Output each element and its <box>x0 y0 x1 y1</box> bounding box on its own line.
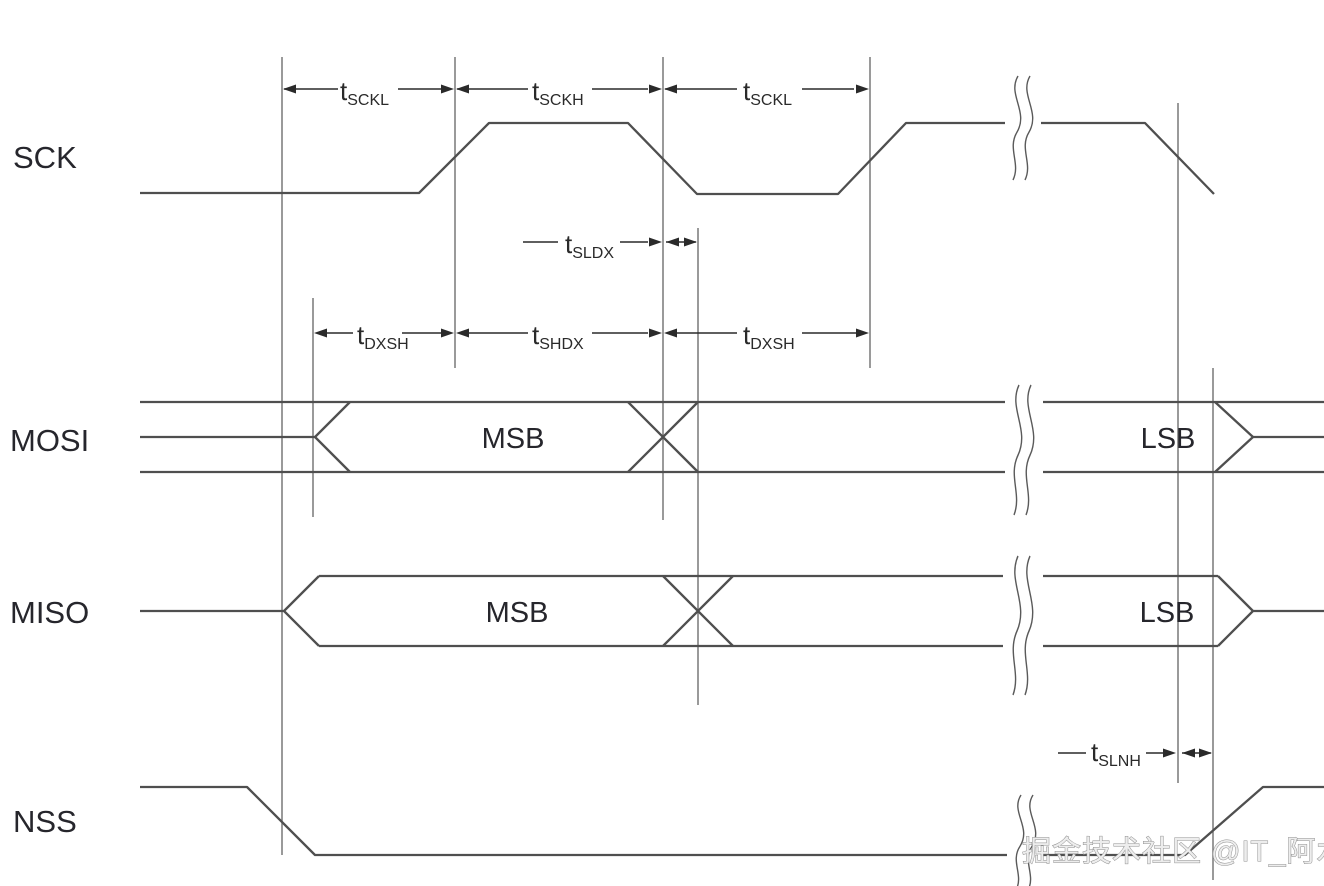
nss-label: NSS <box>13 804 77 839</box>
timing-label-tslnh: tSLNH <box>1091 737 1141 770</box>
mosi-label: MOSI <box>10 423 89 458</box>
timing-label-sub: SLDX <box>572 245 614 262</box>
spi-timing-diagram: tSCKL tSCKH tSCKL tSLDX tDXSH tS <box>0 0 1324 886</box>
arrowhead <box>441 329 454 338</box>
arrowhead <box>649 329 662 338</box>
timing-label-sub: SCKL <box>347 92 389 109</box>
arrowhead <box>664 85 677 94</box>
break-mark <box>1013 556 1033 695</box>
bus-labels: MSB LSB MSB LSB <box>482 423 1196 629</box>
arrowhead <box>1163 749 1176 758</box>
arrowhead <box>1182 749 1195 758</box>
watermark: 掘金技术社区 @IT_阿水 <box>1022 835 1324 868</box>
timing-label-tdxsh-2: tDXSH <box>743 320 795 353</box>
timing-dimension-tsckl-1: tSCKL <box>283 76 454 109</box>
break-marks <box>1013 76 1036 886</box>
sck-waveform <box>140 123 1214 194</box>
timing-dimension-tdxsh-2: tDXSH <box>664 320 869 353</box>
timing-dimension-tdxsh-1: tDXSH <box>314 320 454 353</box>
mosi-bus-transitions <box>315 402 1253 472</box>
miso-label: MISO <box>10 595 89 630</box>
timing-label-tshdx: tSHDX <box>532 320 584 353</box>
arrowhead <box>456 329 469 338</box>
timing-label-sub: DXSH <box>750 336 794 353</box>
timing-label-tsldx: tSLDX <box>565 229 614 262</box>
timing-label-sub: SLNH <box>1098 753 1141 770</box>
msb-label-mosi: MSB <box>482 423 545 455</box>
arrowhead <box>856 329 869 338</box>
break-mark <box>1013 76 1033 180</box>
timing-diagram-canvas: tSCKL tSCKH tSCKL tSLDX tDXSH tS <box>0 0 1324 886</box>
arrowhead <box>684 238 697 247</box>
sck-label: SCK <box>13 140 77 175</box>
reference-lines <box>282 57 1213 880</box>
timing-label-tsckl-1: tSCKL <box>340 76 389 109</box>
timing-dimension-tsckh: tSCKH <box>456 76 662 109</box>
timing-dimension-tsldx: tSLDX <box>523 229 697 262</box>
arrowhead <box>649 85 662 94</box>
lsb-label-miso: LSB <box>1140 597 1195 629</box>
sck-trace <box>140 123 1214 194</box>
miso-lead-out <box>1218 576 1324 646</box>
arrowhead <box>314 329 327 338</box>
timing-label-sub: DXSH <box>364 336 408 353</box>
arrowhead <box>441 85 454 94</box>
timing-dimension-tshdx: tSHDX <box>456 320 662 353</box>
timing-label-sub: SHDX <box>539 336 584 353</box>
arrowhead <box>666 238 679 247</box>
arrowhead <box>456 85 469 94</box>
timing-label-tsckh: tSCKH <box>532 76 584 109</box>
timing-label-tdxsh-1: tDXSH <box>357 320 409 353</box>
arrowhead <box>856 85 869 94</box>
timing-label-sub: SCKH <box>539 92 583 109</box>
lsb-label-mosi: LSB <box>1141 423 1196 455</box>
arrowhead <box>649 238 662 247</box>
timing-dimension-tsckl-2: tSCKL <box>664 76 869 109</box>
signal-labels: SCK MOSI MISO NSS <box>10 140 89 839</box>
miso-lead-in <box>140 576 319 646</box>
timing-label-tsckl-2: tSCKL <box>743 76 792 109</box>
timing-dimension-tslnh: tSLNH <box>1058 737 1212 770</box>
msb-label-miso: MSB <box>486 597 549 629</box>
timing-label-sub: SCKL <box>750 92 792 109</box>
break-mark <box>1014 385 1034 515</box>
arrowhead <box>1199 749 1212 758</box>
arrowhead <box>283 85 296 94</box>
arrowhead <box>664 329 677 338</box>
